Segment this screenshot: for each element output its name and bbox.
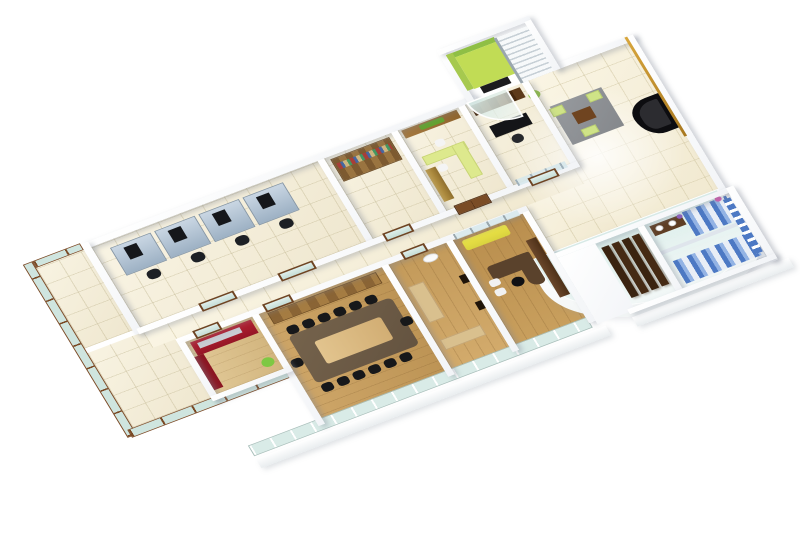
office-3d-floorplan-render [0,0,800,550]
